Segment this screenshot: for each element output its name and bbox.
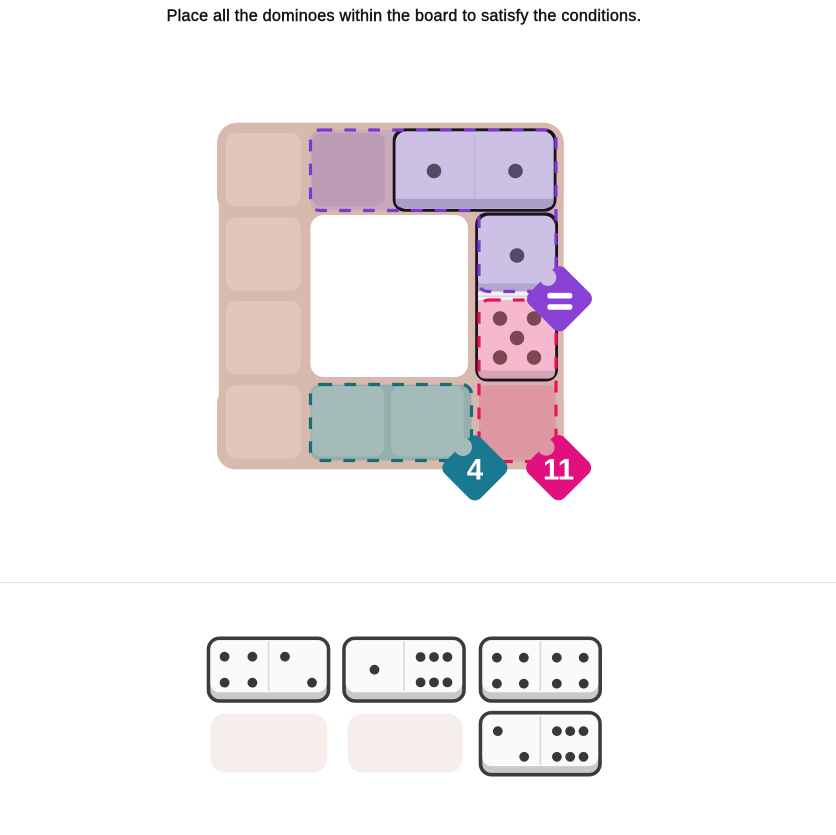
svg-text:4: 4 <box>467 454 484 487</box>
svg-text:Place all the dominoes within: Place all the dominoes within the board … <box>167 7 642 25</box>
svg-text:11: 11 <box>543 453 574 486</box>
